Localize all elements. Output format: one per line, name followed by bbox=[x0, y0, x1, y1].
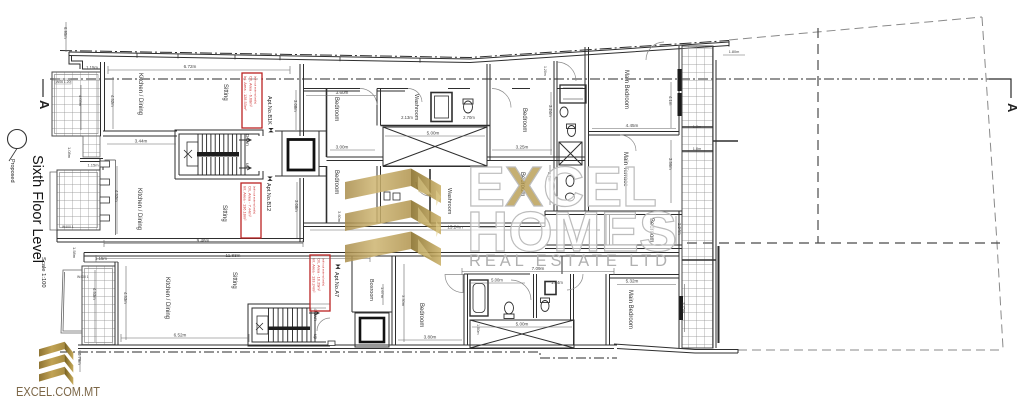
svg-text:1.15m: 1.15m bbox=[86, 65, 98, 70]
svg-text:Int. Area - 128.53m²: Int. Area - 128.53m² bbox=[243, 76, 248, 111]
svg-text:6.72m: 6.72m bbox=[184, 64, 197, 69]
svg-text:1.08m: 1.08m bbox=[67, 147, 72, 159]
svg-text:(with out external walls): (with out external walls) bbox=[254, 76, 258, 104]
svg-text:5.00m: 5.00m bbox=[491, 278, 503, 283]
svg-text:Bedroom: Bedroom bbox=[333, 97, 339, 121]
svg-text:4.52m: 4.52m bbox=[110, 95, 115, 107]
svg-text:Boxroom: Boxroom bbox=[368, 279, 374, 301]
svg-text:6.95m: 6.95m bbox=[63, 27, 68, 39]
svg-text:3.60m: 3.60m bbox=[337, 211, 342, 223]
svg-text:3.60m: 3.60m bbox=[336, 90, 349, 95]
svg-text:Int. Area - 133.24m²: Int. Area - 133.24m² bbox=[312, 258, 317, 293]
svg-text:Bedroom: Bedroom bbox=[418, 303, 424, 327]
svg-text:Down: Down bbox=[245, 134, 250, 146]
svg-text:Sixth Floor Level: Sixth Floor Level bbox=[29, 155, 45, 263]
svg-text:Main Bedroom: Main Bedroom bbox=[623, 70, 629, 109]
svg-text:2.70m: 2.70m bbox=[463, 115, 475, 120]
svg-text:Bedroom: Bedroom bbox=[521, 108, 527, 132]
svg-text:1.58m: 1.58m bbox=[72, 247, 77, 259]
svg-text:1.20m: 1.20m bbox=[543, 66, 547, 76]
svg-text:W400 1: W400 1 bbox=[77, 275, 89, 279]
svg-text:up: up bbox=[245, 163, 250, 169]
svg-text:Sitting: Sitting bbox=[222, 84, 228, 101]
svg-text:Kitchen / Dining: Kitchen / Dining bbox=[164, 277, 170, 319]
svg-text:3.44m: 3.44m bbox=[135, 139, 148, 144]
svg-text:4.03m: 4.03m bbox=[78, 95, 83, 107]
svg-text:3.00m: 3.00m bbox=[336, 145, 349, 150]
svg-text:Kitchen / Dining: Kitchen / Dining bbox=[136, 188, 142, 230]
svg-text:3.08m: 3.08m bbox=[294, 200, 299, 212]
svg-text:5.00m: 5.00m bbox=[427, 131, 440, 136]
svg-text:Washroom: Washroom bbox=[413, 94, 419, 121]
svg-text:2.13m: 2.13m bbox=[401, 115, 413, 120]
svg-text:Int. Area - 136.18m²: Int. Area - 136.18m² bbox=[243, 186, 248, 221]
svg-text:Apt.No.B1K: Apt.No.B1K bbox=[266, 96, 272, 125]
svg-text:Sitting: Sitting bbox=[221, 205, 227, 222]
svg-text:A: A bbox=[37, 100, 52, 110]
svg-text:W400 1: W400 1 bbox=[62, 225, 74, 229]
svg-text:Kitchen / Dining: Kitchen / Dining bbox=[137, 73, 143, 115]
svg-text:A: A bbox=[1005, 103, 1020, 113]
svg-text:4.1m: 4.1m bbox=[668, 96, 673, 106]
svg-text:1.15m: 1.15m bbox=[87, 163, 99, 168]
svg-text:4.53m: 4.53m bbox=[92, 288, 97, 300]
svg-text:3.25m: 3.25m bbox=[516, 145, 529, 150]
svg-text:11.83m: 11.83m bbox=[226, 253, 241, 258]
svg-text:0.79m: 0.79m bbox=[77, 353, 82, 365]
svg-text:6.52m: 6.52m bbox=[174, 333, 187, 338]
svg-text:3.56m: 3.56m bbox=[668, 158, 673, 170]
svg-text:1.8m: 1.8m bbox=[693, 125, 701, 129]
svg-text:3.30m: 3.30m bbox=[401, 295, 406, 307]
svg-text:up: up bbox=[313, 334, 318, 340]
svg-text:3.25m: 3.25m bbox=[682, 302, 687, 314]
svg-text:Apt.No.B12: Apt.No.B12 bbox=[265, 183, 271, 211]
svg-text:1.15m: 1.15m bbox=[95, 256, 107, 261]
svg-text:O/L Area - 10.29m²: O/L Area - 10.29m² bbox=[317, 258, 322, 292]
svg-text:4.52m: 4.52m bbox=[114, 190, 119, 202]
svg-text:Main Bedroom: Main Bedroom bbox=[627, 290, 633, 329]
svg-text:REAL ESTATE LTD: REAL ESTATE LTD bbox=[469, 252, 672, 270]
svg-text:(with out external walls): (with out external walls) bbox=[322, 258, 326, 286]
svg-text:9.46m: 9.46m bbox=[197, 238, 210, 243]
svg-text:Scale 1:100: Scale 1:100 bbox=[40, 257, 46, 288]
svg-text:O/L Area - 7.44m²: O/L Area - 7.44m² bbox=[248, 186, 253, 217]
svg-text:1.50m: 1.50m bbox=[476, 324, 480, 335]
svg-text:4.45m: 4.45m bbox=[626, 123, 639, 128]
svg-text:3.24m: 3.24m bbox=[548, 105, 553, 117]
svg-text:Sitting: Sitting bbox=[231, 272, 237, 289]
svg-text:4.53m: 4.53m bbox=[123, 292, 128, 304]
svg-text:3.80m: 3.80m bbox=[424, 335, 437, 340]
svg-text:Apt.No.A7: Apt.No.A7 bbox=[333, 272, 339, 297]
svg-text:Bedroom: Bedroom bbox=[333, 170, 339, 194]
svg-text:Washroom: Washroom bbox=[446, 188, 452, 215]
svg-text:2.94m: 2.94m bbox=[677, 223, 682, 235]
svg-text:5.00m: 5.00m bbox=[516, 322, 529, 327]
svg-text:(with out external walls): (with out external walls) bbox=[253, 186, 257, 214]
svg-text:1.67m: 1.67m bbox=[380, 287, 385, 299]
svg-text:1.80m: 1.80m bbox=[729, 50, 740, 54]
svg-text:15.24m: 15.24m bbox=[447, 225, 462, 230]
svg-text:Proposed: Proposed bbox=[9, 159, 15, 183]
svg-text:1.8m: 1.8m bbox=[693, 147, 701, 151]
svg-text:1.44m: 1.44m bbox=[551, 280, 563, 285]
svg-text:EXCEL.COM.MT: EXCEL.COM.MT bbox=[16, 384, 100, 399]
svg-text:5.32m: 5.32m bbox=[626, 279, 639, 284]
svg-text:3.08m: 3.08m bbox=[293, 100, 298, 112]
svg-text:O/L Area - 6.68m²: O/L Area - 6.68m² bbox=[249, 76, 254, 107]
